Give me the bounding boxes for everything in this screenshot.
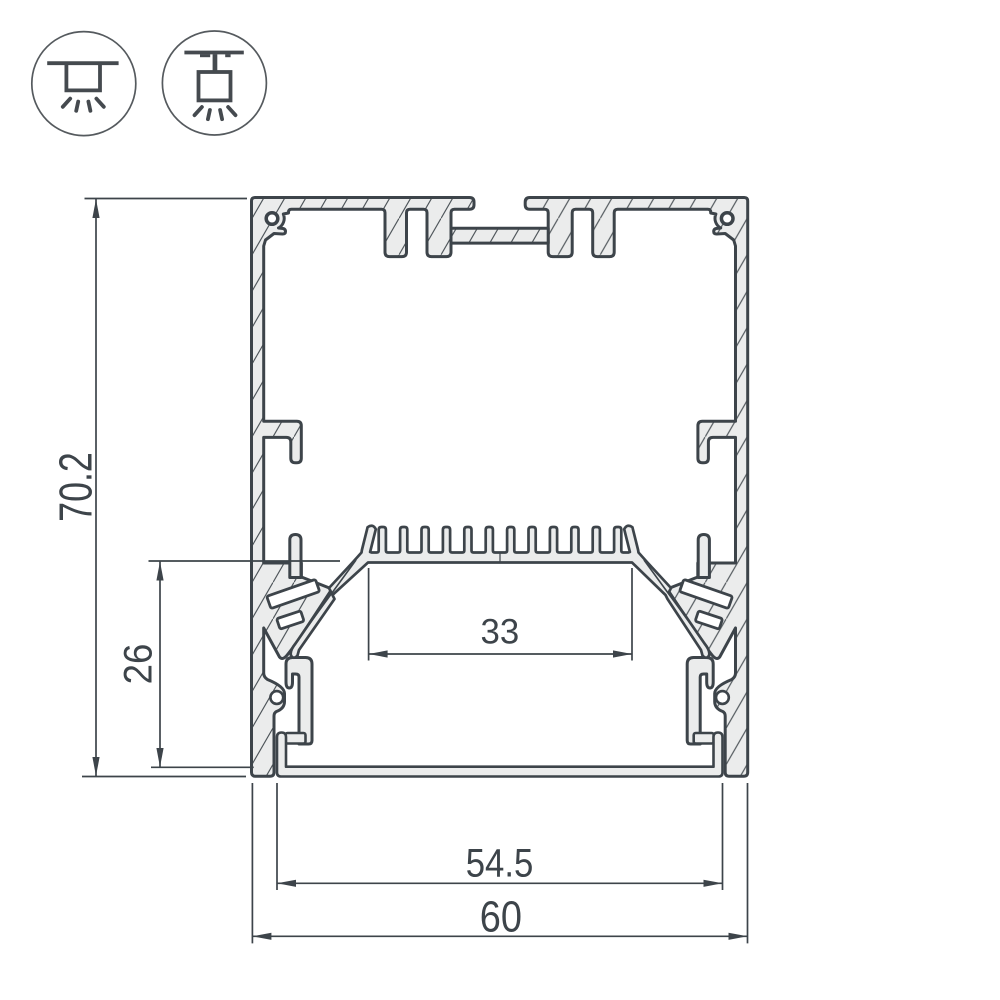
svg-text:60: 60 xyxy=(480,892,522,941)
svg-text:33: 33 xyxy=(481,612,520,651)
svg-text:26: 26 xyxy=(116,644,160,685)
svg-text:70.2: 70.2 xyxy=(50,452,102,522)
svg-text:54.5: 54.5 xyxy=(466,841,534,885)
